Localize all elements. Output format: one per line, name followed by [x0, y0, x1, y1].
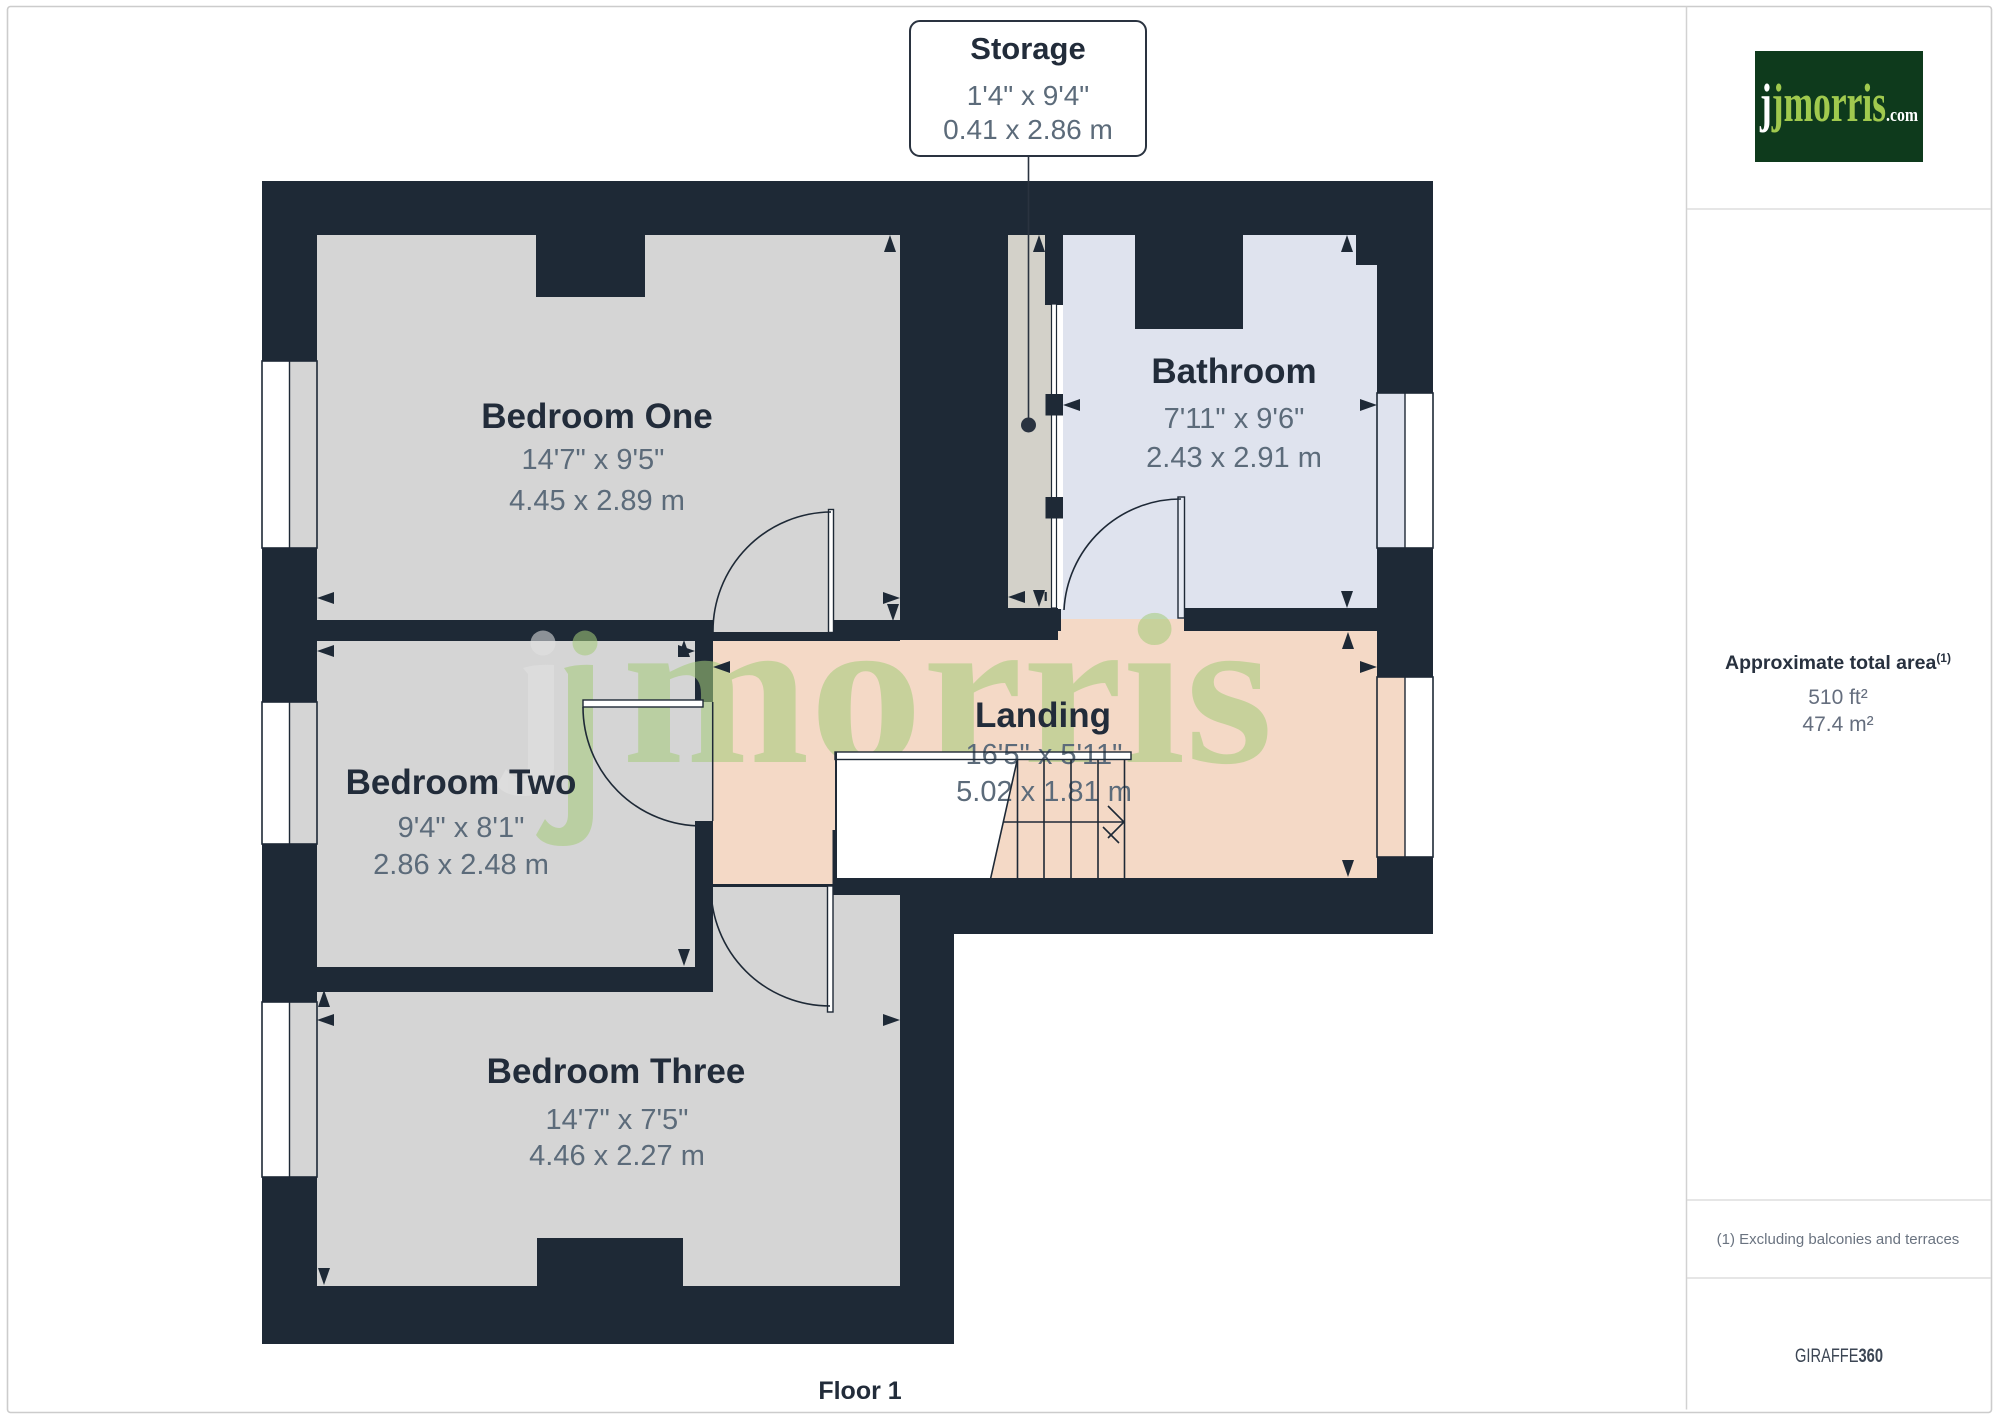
svg-text:7'11" x 9'6": 7'11" x 9'6" [1164, 403, 1305, 435]
svg-text:Bedroom Two: Bedroom Two [346, 763, 577, 802]
svg-text:Bedroom One: Bedroom One [481, 397, 712, 436]
svg-text:Bedroom Three: Bedroom Three [487, 1052, 746, 1091]
svg-text:.com: .com [1886, 105, 1918, 126]
svg-text:GIRAFFE360: GIRAFFE360 [1795, 1346, 1883, 1367]
svg-text:4.45 x 2.89 m: 4.45 x 2.89 m [509, 485, 685, 517]
svg-text:14'7" x 7'5": 14'7" x 7'5" [546, 1104, 689, 1136]
svg-text:510 ft²: 510 ft² [1808, 686, 1868, 709]
svg-text:Bathroom: Bathroom [1151, 352, 1316, 391]
svg-text:Storage: Storage [970, 31, 1085, 66]
svg-text:(1) Excluding balconies and te: (1) Excluding balconies and terraces [1717, 1231, 1960, 1248]
svg-text:1'4" x 9'4": 1'4" x 9'4" [967, 80, 1089, 111]
svg-text:4.46 x 2.27 m: 4.46 x 2.27 m [529, 1140, 705, 1172]
svg-text:Landing: Landing [975, 696, 1111, 735]
svg-text:Approximate total area(1): Approximate total area(1) [1725, 651, 1951, 674]
svg-text:9'4" x 8'1": 9'4" x 8'1" [398, 812, 525, 844]
svg-text:14'7" x 9'5": 14'7" x 9'5" [522, 444, 665, 476]
svg-text:2.43 x 2.91 m: 2.43 x 2.91 m [1146, 442, 1322, 474]
svg-text:47.4 m²: 47.4 m² [1802, 713, 1873, 736]
svg-text:0.41 x 2.86 m: 0.41 x 2.86 m [943, 114, 1113, 145]
svg-text:jjmorris: jjmorris [1759, 73, 1886, 133]
svg-text:Floor 1: Floor 1 [818, 1377, 901, 1405]
svg-text:2.86 x 2.48 m: 2.86 x 2.48 m [373, 849, 549, 881]
